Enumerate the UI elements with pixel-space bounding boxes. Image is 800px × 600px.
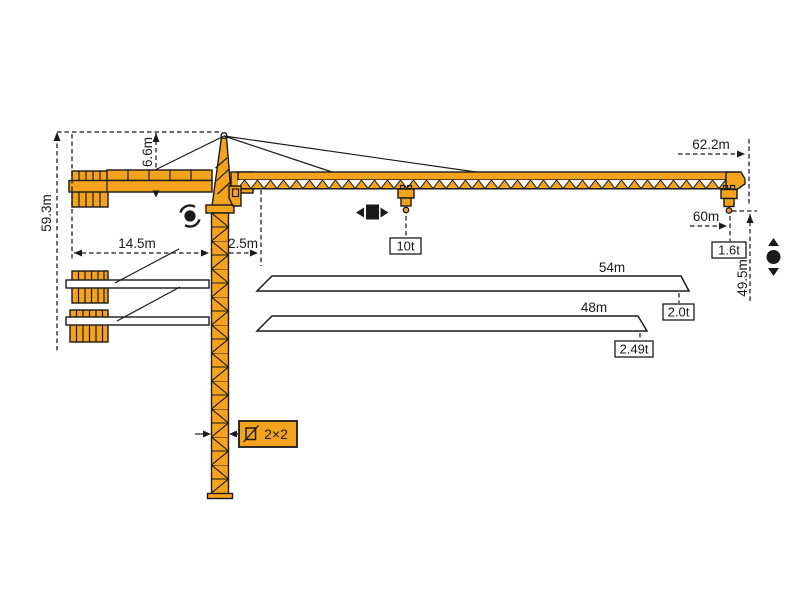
jib-lattice [238,180,726,189]
slew-icon [181,205,200,226]
max-radius-label: 60m [693,209,719,224]
crane-dimension-diagram: 59.3m 6.6m 14.5m 2.5m 62.2m 60m 49.5m 54… [0,0,800,600]
main-jib [229,172,745,206]
hook-height-label: 49.5m [735,259,750,297]
hook [726,208,731,213]
alt-jib-1-load-value: 2.0t [668,305,690,320]
mast-section-badge: 2×2 [239,421,297,447]
jib-length-label: 62.2m [692,137,730,152]
mast-section-value: 2×2 [264,426,288,442]
counterjib-beam [69,181,212,193]
leader-line [115,249,179,283]
diagram-canvas: 59.3m 6.6m 14.5m 2.5m 62.2m 60m 49.5m 54… [0,0,800,600]
total-height-label: 59.3m [39,194,54,232]
leader-line [117,287,180,321]
turntable [206,205,234,213]
alt-jib-2-load-value: 2.49t [620,342,649,357]
jib-top-chord [238,172,728,180]
rear-clearance-label: 2.5m [228,236,258,251]
trolley-travel-icon [356,205,389,220]
alt-jib-1-length-label: 54m [599,260,625,275]
hoist-icon [767,238,781,276]
tip-trolley-hook [721,186,737,214]
alt-jib-2-load-badge: 2.49t [615,341,653,357]
alt-jib-1-load-badge: 2.0t [663,304,694,320]
tip-load-value: 1.6t [718,243,740,258]
mid-trolley-hook [398,186,414,213]
counterjib-radius-label: 14.5m [118,236,156,251]
alt-jib-54m [257,276,689,303]
cab [229,186,241,206]
counter-jib [69,170,212,207]
alt-counterjib-1 [66,249,209,303]
alt-jib-48m [257,316,647,340]
counterjib-platform [107,170,212,181]
mast-section-icon [244,426,259,443]
max-load-badge: 10t [390,238,421,254]
jib-tip [726,172,745,190]
tip-load-badge: 1.6t [712,242,746,258]
alt-jib-2-length-label: 48m [581,300,607,315]
tower-base [208,494,233,499]
tower-head-height-label: 6.6m [140,137,155,167]
max-load-value: 10t [396,239,414,254]
hook [403,207,408,212]
tie-rods [155,136,490,174]
